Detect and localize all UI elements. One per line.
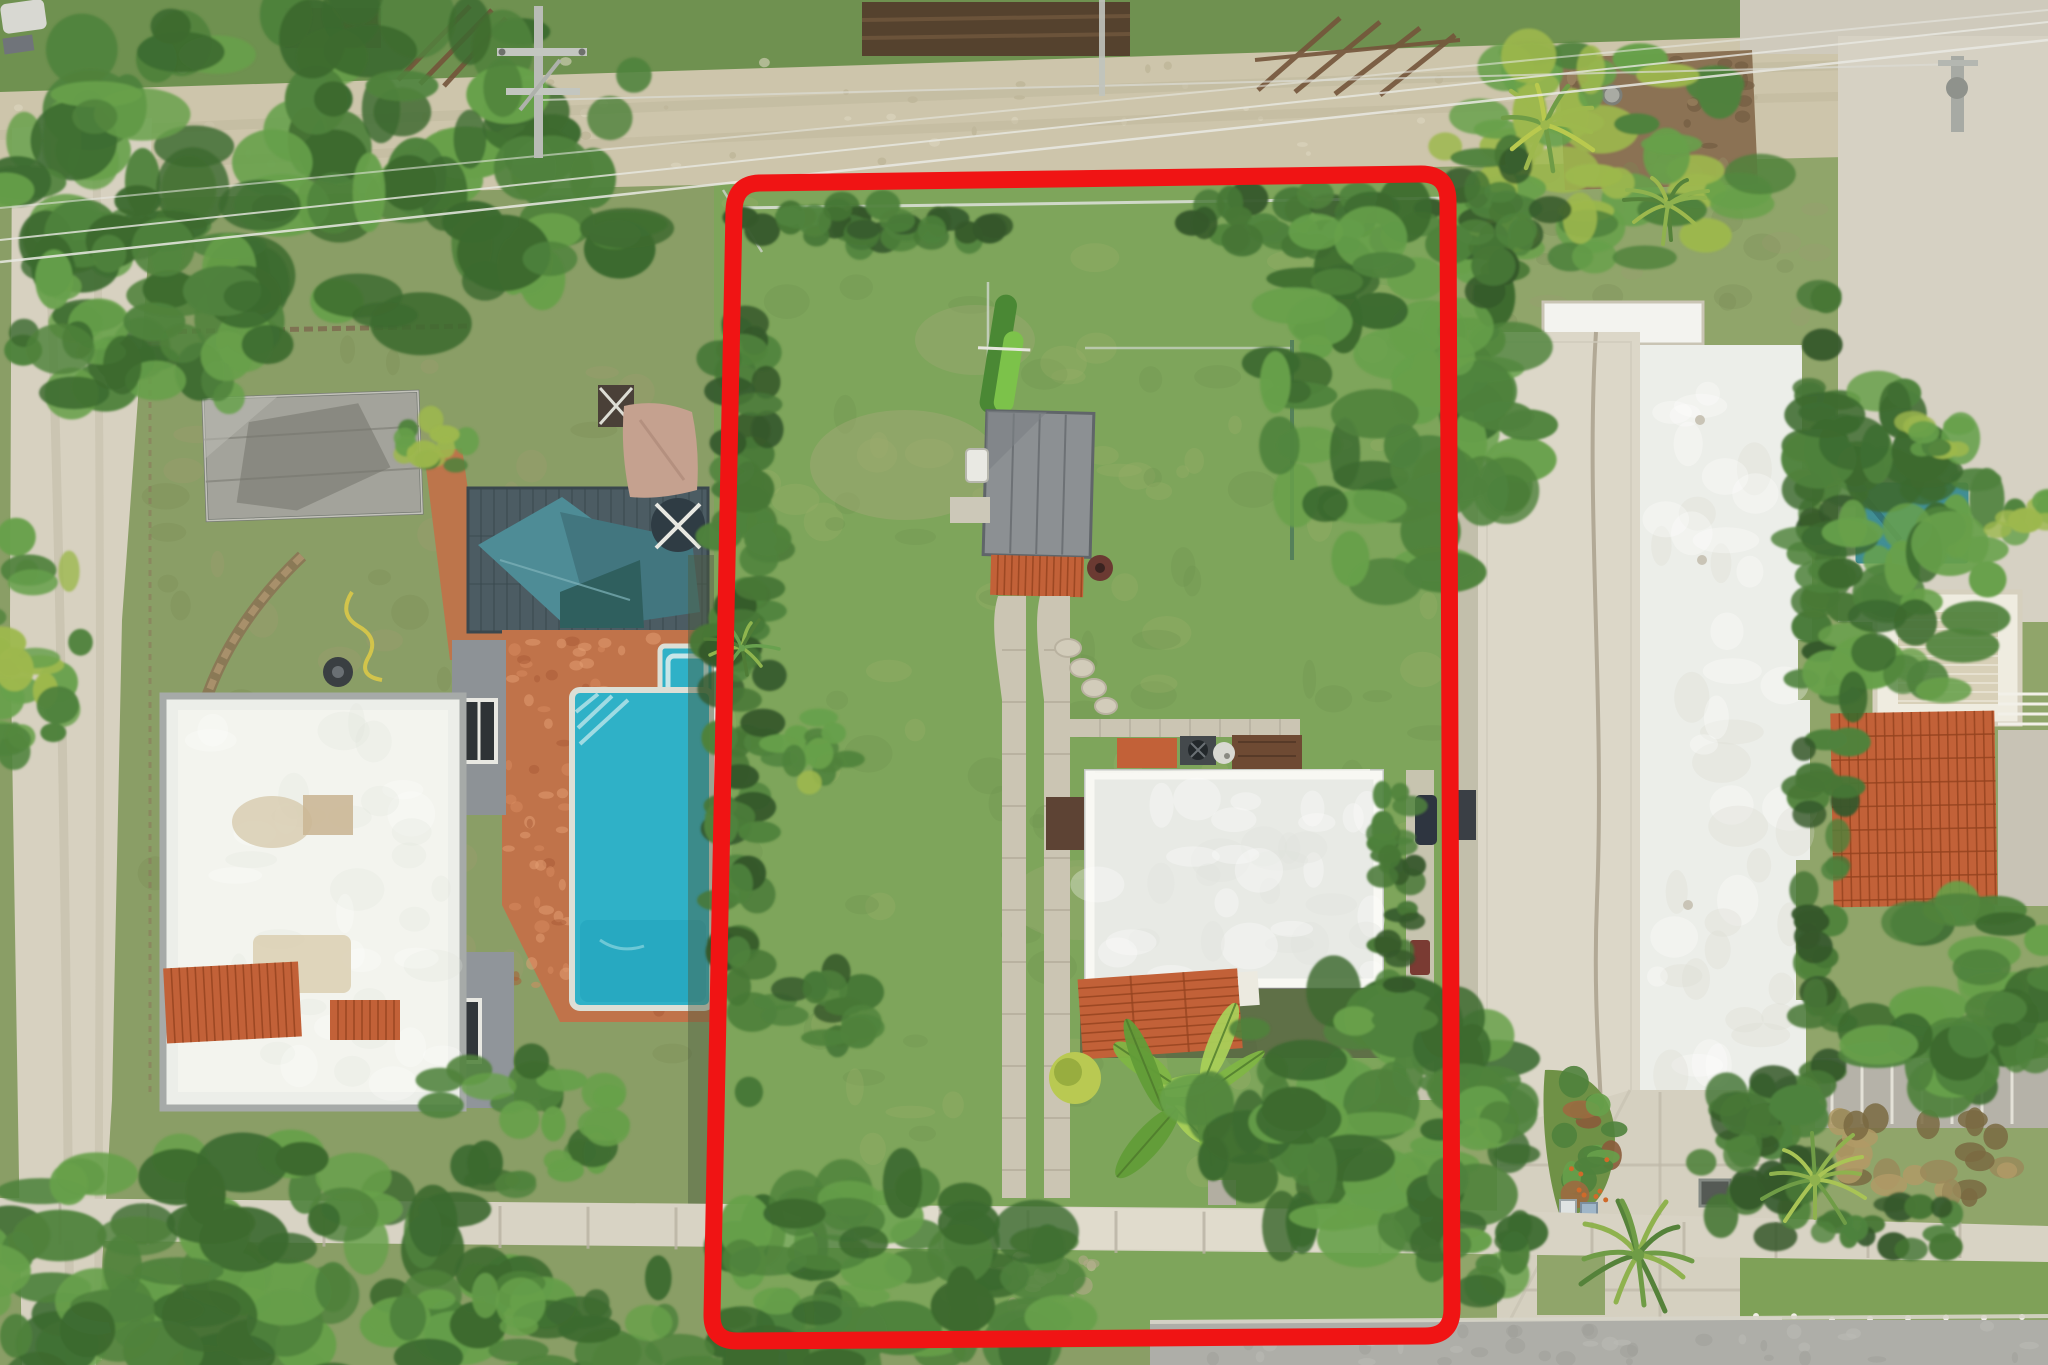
lot-mottle-spot (1363, 690, 1392, 702)
foliage-blob (1565, 164, 1623, 188)
foliage-blob (1297, 180, 1334, 209)
foliage-blob (840, 1017, 876, 1048)
alley-tex-spot (1306, 151, 1311, 156)
mainroof-streaks-spot (1271, 921, 1314, 937)
foliage-blob (26, 324, 95, 375)
foliage-blob (761, 1005, 809, 1026)
foliage-blob (1943, 416, 1975, 434)
rightroof-streaks-spot (1736, 556, 1763, 588)
mainroof-streaks-spot (1196, 863, 1220, 886)
carport-roof (1046, 797, 1084, 850)
foliage-blob (792, 1301, 842, 1325)
lot-mottle-spot (825, 517, 845, 531)
leftroof-streaks-spot (392, 843, 426, 869)
foliage-blob (1926, 628, 1999, 662)
foliage-blob (1822, 776, 1866, 798)
patio-mottle-spot (529, 765, 540, 774)
grass-patch (1537, 1253, 1605, 1315)
dry-shrubs-spot (1983, 1124, 2008, 1150)
flower (1582, 1193, 1587, 1198)
rightroof-streaks-spot (1731, 1023, 1790, 1047)
foliage-blob (616, 57, 652, 92)
foliage-blob (797, 771, 822, 795)
lot-mottle-spot (826, 691, 848, 710)
mainroof-streaks-spot (1215, 888, 1239, 917)
foliage-blob (847, 220, 881, 240)
foliage-blob (37, 686, 79, 724)
foliage-blob (830, 751, 865, 768)
foliage-blob (823, 198, 852, 221)
mainroof-streaks-spot (1147, 863, 1174, 904)
street-tex-spot (1505, 1338, 1525, 1354)
mainroof-streaks-spot (1221, 923, 1278, 970)
foliage-blob (1302, 486, 1348, 522)
soil-tex-spot (1735, 111, 1750, 123)
foliage-blob (39, 377, 109, 410)
street-tex-spot (1868, 1356, 1887, 1362)
foliage-blob (496, 1278, 546, 1329)
alley-tex-spot (759, 58, 770, 67)
left-mottle-spot (421, 359, 439, 373)
utility-pole (1099, 0, 1105, 96)
utility-cart (966, 449, 988, 482)
foliage-blob (450, 1145, 489, 1187)
lot-mottle-spot (1194, 365, 1241, 388)
foliage-blob (1881, 901, 1944, 944)
patio-mottle-spot (502, 845, 514, 851)
flower (1577, 1188, 1582, 1193)
leftroof-streaks-spot (197, 714, 228, 747)
foliage-blob (977, 213, 1013, 238)
foliage-blob (1260, 351, 1291, 413)
foliage-blob (1311, 269, 1363, 296)
foliage-blob (108, 1279, 155, 1348)
leftroof-streaks-spot (432, 876, 451, 902)
left-mottle-spot (516, 450, 547, 483)
leftroof-streaks-spot (394, 948, 439, 969)
right-mottle-spot (1714, 284, 1752, 309)
foliage-blob (883, 1148, 922, 1218)
foliage-blob (1333, 1006, 1376, 1035)
patio-mottle-spot (526, 957, 537, 970)
foliage-blob (1563, 192, 1597, 244)
foliage-blob (1494, 1230, 1528, 1252)
foliage-blob (1821, 859, 1848, 881)
left-house-roof (163, 640, 514, 1108)
foliage-blob (1929, 1233, 1963, 1261)
pool-screen-enclosure (468, 488, 708, 632)
foliage-blob (1374, 930, 1402, 958)
lot-mottle-spot (866, 660, 912, 682)
foliage-blob (1781, 774, 1824, 799)
foliage-blob (1613, 246, 1677, 270)
foliage-blob (103, 336, 142, 395)
left-mottle-spot (386, 349, 400, 375)
alley-tex-spot (878, 158, 887, 166)
street-tex-spot (1980, 1321, 1994, 1332)
concrete-pad (950, 497, 990, 523)
left-mottle-spot (437, 667, 452, 692)
foliage-blob (429, 425, 459, 443)
foliage-blob (162, 1279, 258, 1352)
alley-tex-spot (547, 79, 555, 85)
foliage-blob (219, 180, 301, 231)
street-tex-spot (1539, 1351, 1551, 1362)
patio-mottle-spot (516, 670, 527, 677)
dry-shrubs-spot (1844, 1111, 1869, 1141)
lot-mottle-spot (1139, 366, 1162, 392)
foliage-blob (483, 59, 522, 117)
foliage-blob (582, 1073, 627, 1112)
left-mottle-spot (163, 458, 203, 483)
foliage-blob (763, 1199, 825, 1229)
street-tex-spot (1787, 1324, 1802, 1339)
street-tex-spot (2012, 1352, 2018, 1363)
foliage-blob (724, 968, 751, 1006)
foliage-blob (1992, 1023, 2021, 1047)
street-tex-spot (1457, 1324, 1468, 1338)
dry-shrubs-spot (1920, 1160, 1958, 1184)
leftroof-streaks-spot (336, 894, 354, 933)
patio-mottle-spot (578, 643, 592, 652)
rightroof-streaks-spot (1690, 734, 1718, 754)
foliage-blob (46, 14, 118, 86)
foliage-blob (1229, 1018, 1270, 1041)
patio-mottle-spot (520, 832, 531, 839)
foliage-blob (803, 971, 828, 1003)
patio-mottle-spot (525, 639, 540, 646)
foliage-blob (839, 1226, 888, 1258)
concrete-pad (1998, 730, 2048, 906)
rightroof-streaks-spot (1747, 848, 1771, 882)
foliage-blob (645, 1255, 672, 1300)
foliage-blob (1953, 949, 2011, 985)
foliage-blob (1484, 182, 1516, 203)
foliage-blob (1331, 531, 1369, 586)
foliage-blob (1802, 329, 1843, 361)
rightroof-streaks-spot (1682, 958, 1710, 1000)
lot-mottle-spot (1420, 592, 1438, 619)
mainroof-streaks-spot (1306, 893, 1358, 915)
patio-mottle-spot (506, 675, 519, 683)
alley-tex-spot (1297, 142, 1308, 147)
rightroof-streaks-spot (1704, 696, 1729, 740)
foliage-blob (151, 9, 191, 44)
foliage-blob (1965, 991, 2027, 1027)
left-mottle-spot (149, 523, 186, 542)
patio-mottle-spot (557, 788, 568, 798)
mainroof-streaks-spot (1211, 807, 1256, 832)
foliage-blob (625, 1305, 672, 1341)
rightroof-streaks-spot (1647, 966, 1668, 986)
left-mottle-spot (171, 591, 191, 621)
foliage-blob (1796, 930, 1833, 963)
foliage-blob (1789, 871, 1818, 908)
palm-crown (1810, 1175, 1821, 1186)
foliage-blob (133, 1257, 224, 1285)
foliage-blob (1975, 912, 2035, 936)
foliage-blob (1797, 280, 1842, 311)
foliage-blob (1289, 1203, 1379, 1230)
rightroof-streaks-spot (1708, 806, 1768, 847)
foliage-blob (462, 261, 508, 300)
street-tex-spot (2019, 1342, 2039, 1350)
foliage-blob (1222, 1153, 1278, 1203)
leftroof-streaks-spot (369, 1066, 418, 1101)
lot-mottle-spot (1228, 416, 1242, 435)
foliage-blob (381, 155, 436, 210)
foliage-blob (258, 1233, 317, 1264)
foliage-blob (1874, 1197, 1908, 1213)
patio-mottle-spot (534, 896, 540, 908)
mainroof-streaks-spot (1173, 778, 1221, 821)
foliage-blob (1818, 558, 1863, 588)
leftroof-streaks-spot (348, 703, 365, 743)
palm-crown (1632, 1249, 1644, 1261)
patio-mottle-spot (531, 982, 540, 988)
foliage-blob (1614, 113, 1659, 134)
lot-mottle-spot (895, 529, 936, 545)
foliage-blob (1792, 737, 1816, 761)
foliage-blob (1840, 1225, 1859, 1248)
rightroof-streaks-spot (1650, 916, 1698, 957)
left-mottle-spot (391, 595, 429, 630)
alley-tex-spot (729, 152, 736, 159)
island-plant (1552, 1123, 1577, 1148)
foliage-blob (50, 1163, 88, 1205)
foliage-blob (1307, 1137, 1337, 1203)
foliage-blob (114, 185, 161, 216)
foliage-blob (408, 1185, 457, 1257)
lot-mottle-spot (1070, 243, 1119, 272)
foliage-blob (1819, 416, 1890, 470)
foliage-blob (1803, 978, 1827, 1016)
flower (1597, 1189, 1602, 1194)
patio-mottle-spot (534, 675, 540, 682)
tile-line (1011, 555, 1012, 595)
lot-mottle-spot (1097, 464, 1142, 477)
leftroof-streaks-spot (280, 1045, 317, 1087)
patio-mottle-spot (551, 919, 566, 925)
foliage-blob (751, 411, 784, 449)
patio-mottle-spot (534, 845, 544, 851)
street-tex-spot (1695, 1334, 1712, 1346)
patio-mottle-spot (508, 643, 520, 656)
foliage-blob (1221, 223, 1263, 256)
patio-mottle-spot (527, 819, 533, 828)
street-tex-spot (1256, 1351, 1265, 1362)
street-tex-spot (1764, 1355, 1774, 1361)
foliage-blob (1259, 417, 1300, 475)
lot-mottle-spot (942, 1091, 964, 1118)
patio-mottle-spot (505, 760, 512, 770)
foliage-blob (1352, 252, 1415, 278)
mainroof-streaks-spot (1343, 803, 1364, 832)
foliage-blob (314, 81, 353, 116)
left-mottle-spot (368, 569, 391, 585)
foliage-blob (1399, 913, 1425, 930)
lot-mottle-spot (860, 1133, 886, 1165)
foliage-blob (1686, 1149, 1716, 1176)
flower (1604, 1157, 1609, 1162)
street-tex-spot (1798, 1342, 1810, 1352)
street-tex-spot (1620, 1345, 1638, 1358)
foliage-blob (782, 745, 805, 777)
lot-mottle-spot (840, 274, 873, 300)
foliage-blob (722, 1239, 760, 1276)
foliage-blob (1332, 1112, 1416, 1136)
tile-awning (330, 1000, 400, 1040)
rightroof-streaks-spot (1710, 613, 1743, 651)
lot-mottle-spot (845, 895, 879, 914)
foliage-blob (40, 723, 66, 742)
foliage-blob (1572, 240, 1617, 274)
tile-line (997, 555, 998, 595)
rightroof-streaks-spot (1671, 511, 1713, 555)
foliage-blob (1723, 1136, 1760, 1173)
lot-mottle-spot (1228, 471, 1278, 508)
foliage-blob (546, 1296, 612, 1328)
tile-line (1025, 556, 1026, 596)
lot-mottle-spot (886, 1106, 936, 1119)
foliage-blob (744, 213, 780, 246)
foliage-blob (1383, 977, 1416, 993)
foliage-blob (938, 1201, 1000, 1245)
foliage-blob (461, 1073, 516, 1100)
patio-mottle-spot (544, 719, 553, 729)
foliage-blob (60, 1302, 115, 1358)
foliage-blob (514, 1043, 549, 1079)
lot-mottle-spot (1132, 630, 1181, 650)
leftroof-streaks-spot (399, 907, 430, 932)
rightroof-streaks-spot (1703, 658, 1762, 684)
foliage-blob (1262, 1087, 1327, 1131)
alley-tex-spot (560, 57, 572, 66)
foliage-blob (1455, 1118, 1502, 1150)
left-mottle-spot (158, 575, 179, 593)
foliage-blob (418, 1092, 464, 1118)
foliage-blob (541, 1106, 566, 1141)
foliage-blob (495, 1171, 536, 1198)
street-tex-spot (1626, 1358, 1633, 1365)
soil-tex-spot (1687, 98, 1698, 106)
foliage-blob (1392, 796, 1427, 817)
foliage-blob (308, 1203, 340, 1236)
foliage-blob (1641, 134, 1702, 154)
foliage-blob (1848, 600, 1907, 633)
tile-line (1039, 556, 1040, 596)
foliage-blob (1825, 819, 1850, 853)
foliage-blob (472, 1273, 499, 1318)
street-tex-spot (1508, 1325, 1518, 1339)
foliage-blob (547, 1159, 584, 1182)
flower (1603, 1197, 1608, 1202)
patio-mottle-spot (646, 633, 661, 645)
tile-line (1067, 557, 1068, 597)
dry-shrubs-spot (1965, 1107, 1984, 1136)
tile-line (1032, 556, 1033, 596)
tile-line (1046, 556, 1047, 596)
foliage-blob (733, 461, 764, 502)
foliage-blob (366, 70, 439, 101)
soil-tex-spot (1684, 119, 1691, 128)
foliage-blob (160, 324, 205, 363)
lot-mottle-spot (1171, 547, 1195, 587)
patio-mottle-spot (535, 860, 546, 871)
foliage-blob (1851, 633, 1896, 672)
flower (1569, 1166, 1574, 1171)
foliage-blob (738, 821, 781, 843)
patio-mottle-spot (548, 966, 554, 974)
lawn-strip (1740, 1255, 2048, 1317)
walkway (1070, 719, 1300, 737)
lot-mottle-spot (905, 719, 926, 742)
stored-items (1458, 790, 1476, 840)
palm-crown (1540, 120, 1550, 130)
foliage-blob (1720, 1092, 1771, 1135)
foliage-blob (0, 1314, 32, 1358)
tile-line (1053, 556, 1054, 596)
foliage-blob (1995, 510, 2020, 526)
dry-shrubs-spot (1961, 1188, 1977, 1207)
patio-mottle-spot (546, 866, 554, 877)
street-tex-spot (1450, 1346, 1463, 1353)
foliage-blob (8, 569, 58, 595)
alley-tex-spot (886, 114, 896, 121)
foliage-blob (1529, 196, 1572, 223)
lot-mottle-spot (1111, 573, 1138, 601)
foliage-blob (444, 458, 468, 473)
palm-crown (739, 645, 746, 652)
leftroof-streaks-spot (392, 818, 432, 845)
lot-mottle-spot (1140, 675, 1177, 693)
foliage-blob (931, 1280, 995, 1333)
lot-mottle-spot (846, 1068, 864, 1105)
lot-mottle-spot (1315, 685, 1352, 712)
left-mottle-spot (586, 366, 619, 379)
foliage-blob (1471, 246, 1516, 286)
alley-tex-spot (580, 132, 591, 140)
tile-line (1018, 556, 1019, 596)
foliage-blob (1453, 1275, 1505, 1308)
foliage-blob (752, 660, 787, 691)
leftroof-streaks-spot (334, 1056, 370, 1087)
foliage-blob (1411, 349, 1441, 389)
foliage-blob (1217, 186, 1244, 220)
lot-mottle-spot (1040, 346, 1087, 381)
wood-deck (1232, 735, 1302, 772)
patio-mottle-spot (509, 903, 521, 911)
rightroof-streaks-spot (1705, 908, 1742, 936)
left-mottle-spot (211, 551, 225, 578)
foliage-blob (1729, 1168, 1768, 1210)
foliage-blob (1904, 1194, 1934, 1219)
alley-tex-spot (14, 104, 23, 111)
foliage-blob (587, 96, 632, 140)
foliage-blob (279, 0, 346, 79)
foliage-blob (1792, 801, 1826, 828)
right-mottle-spot (1762, 232, 1801, 254)
foliage-blob (1372, 1007, 1438, 1033)
foliage-blob (918, 216, 947, 245)
foliage-blob (1792, 905, 1825, 924)
patio-mottle-spot (539, 905, 554, 914)
tile-awning (163, 961, 302, 1043)
lot-mottle-spot (1176, 465, 1189, 478)
rightroof-streaks-spot (1702, 458, 1749, 495)
patio-mottle-spot (524, 694, 534, 706)
foliage-blob (91, 235, 126, 273)
